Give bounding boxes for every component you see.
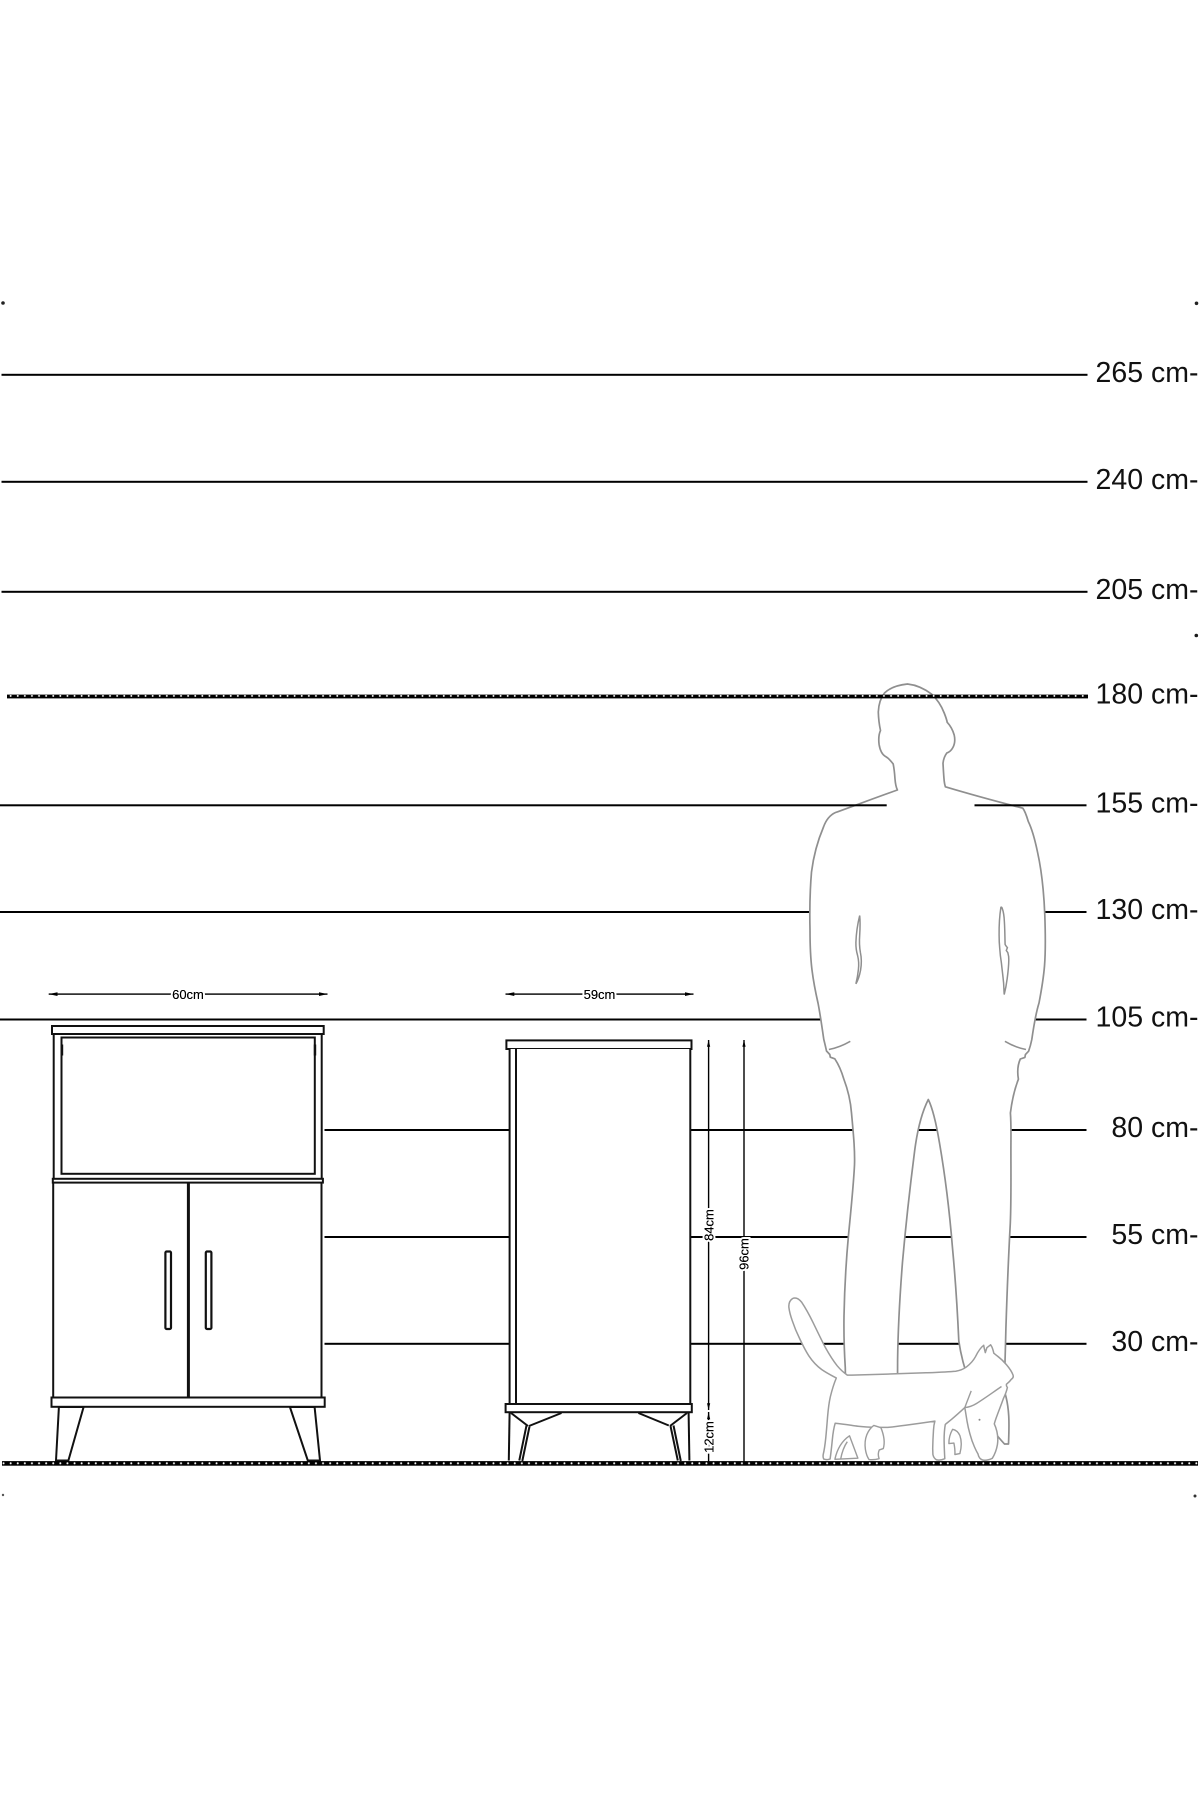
svg-text:55 cm-: 55 cm- (1111, 1219, 1198, 1251)
svg-text:130 cm-: 130 cm- (1096, 894, 1199, 926)
svg-text:80 cm-: 80 cm- (1111, 1112, 1198, 1144)
svg-text:59cm: 59cm (584, 987, 616, 1002)
svg-text:205 cm-: 205 cm- (1096, 574, 1199, 606)
svg-text:265 cm-: 265 cm- (1096, 357, 1199, 389)
svg-text:12cm: 12cm (701, 1421, 716, 1453)
svg-text:60cm: 60cm (172, 987, 204, 1002)
svg-text:180 cm-: 180 cm- (1096, 679, 1199, 711)
svg-text:96cm: 96cm (737, 1238, 752, 1270)
svg-text:155 cm-: 155 cm- (1096, 787, 1199, 819)
svg-text:105 cm-: 105 cm- (1096, 1002, 1199, 1034)
svg-text:30 cm-: 30 cm- (1111, 1326, 1198, 1358)
svg-text:84cm: 84cm (701, 1209, 716, 1241)
svg-text:240 cm-: 240 cm- (1096, 464, 1199, 496)
